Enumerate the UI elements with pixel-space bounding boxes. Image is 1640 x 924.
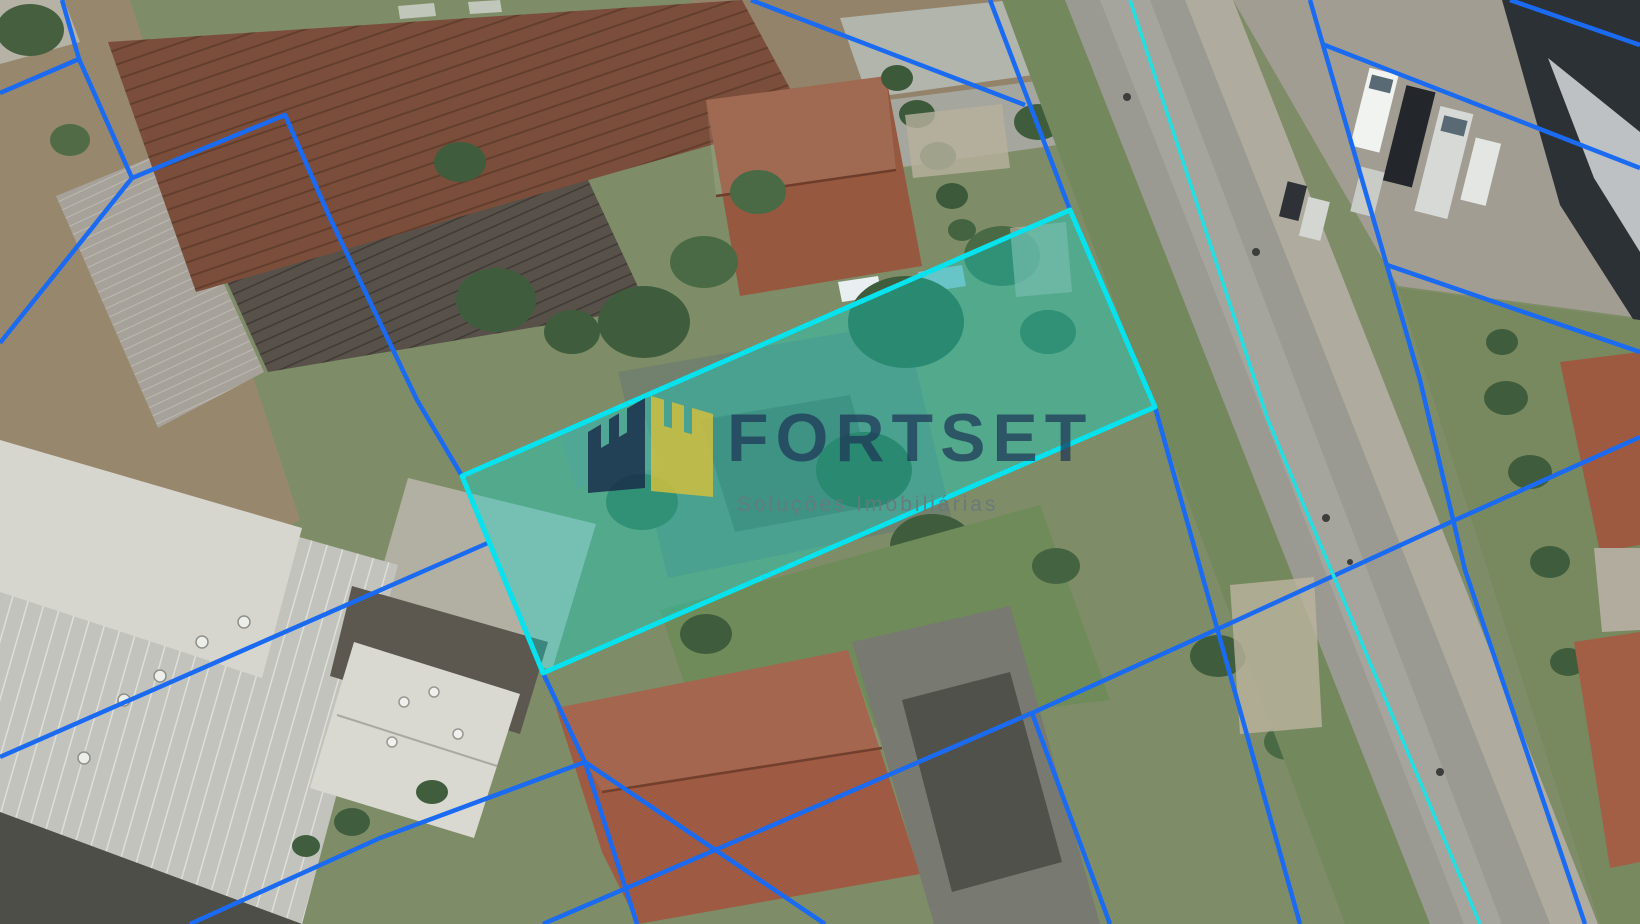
road-edge-lines [1130, 0, 1480, 924]
parcel-boundary-line [585, 762, 825, 924]
highlighted-parcel-group [462, 210, 1155, 673]
parcel-boundary-line [990, 0, 1300, 924]
parcel-boundary-line [0, 59, 79, 93]
parcel-boundary-line [1032, 437, 1640, 713]
parcel-boundary-line [1032, 713, 1110, 924]
parcel-boundary-line [190, 762, 585, 924]
parcel-boundary-line [1310, 0, 1585, 924]
highlighted-parcel [462, 210, 1155, 673]
parcel-boundary-line [0, 542, 490, 757]
parcel-boundary-line [1322, 44, 1640, 168]
parcel-boundary-line [751, 0, 1025, 105]
cadastral-overlay [0, 0, 1640, 924]
road-edge-line [1130, 0, 1480, 924]
aerial-map-view: FORTSET Soluções Imobiliárias [0, 0, 1640, 924]
parcel-boundary-line [543, 713, 1032, 924]
parcel-boundary-line [0, 178, 132, 343]
parcel-boundary-line [1387, 265, 1640, 352]
parcel-boundary-line [1510, 0, 1640, 45]
